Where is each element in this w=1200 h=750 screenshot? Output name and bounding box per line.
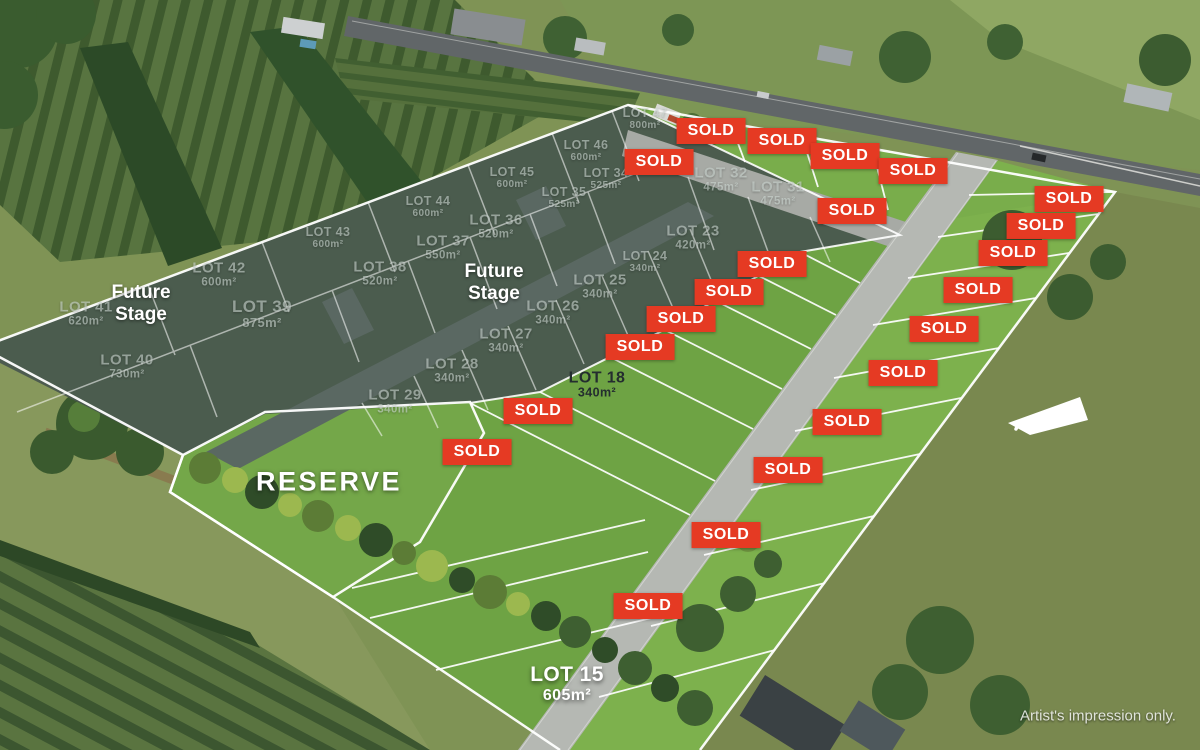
lot-label-28: LOT 28 340m² bbox=[425, 357, 478, 386]
lot-label-46: LOT 46 600m² bbox=[564, 139, 609, 163]
lot-area: 525m² bbox=[584, 180, 629, 191]
lot-label-31: LOT 31 475m² bbox=[751, 180, 804, 209]
lot-name: LOT 25 bbox=[573, 273, 626, 289]
sold-badge: SOLD bbox=[614, 593, 683, 619]
lot-label-42: LOT 42 600m² bbox=[192, 261, 245, 290]
lot-area: 730m² bbox=[100, 369, 153, 381]
lot-name: LOT 40 bbox=[100, 353, 153, 369]
sold-badge: SOLD bbox=[979, 240, 1048, 266]
lot-name: LOT 18 bbox=[569, 370, 626, 387]
lot-area: 600m² bbox=[306, 239, 351, 250]
lot-area: 340m² bbox=[479, 343, 532, 355]
sold-badge: SOLD bbox=[748, 128, 817, 154]
lot-label-44: LOT 44 600m² bbox=[406, 195, 451, 219]
lot-label-35: LOT 35 525m² bbox=[542, 186, 587, 210]
lot-label-47: LOT 47 800m² bbox=[623, 107, 668, 131]
lot-area: 600m² bbox=[406, 208, 451, 219]
lot-label-18: LOT 18 340m² bbox=[569, 370, 626, 401]
sold-badge: SOLD bbox=[677, 118, 746, 144]
lot-area: 340m² bbox=[623, 263, 668, 274]
lot-area: 340m² bbox=[526, 315, 579, 327]
sold-badge: SOLD bbox=[869, 360, 938, 386]
artist-impression-credit: Artist's impression only. bbox=[1020, 708, 1176, 725]
lot-area: 475m² bbox=[694, 182, 747, 194]
lot-name: LOT 42 bbox=[192, 261, 245, 277]
lot-name: LOT 15 bbox=[530, 664, 604, 687]
sold-badge: SOLD bbox=[692, 522, 761, 548]
lot-name: LOT 35 bbox=[542, 186, 587, 200]
lot-name: LOT 39 bbox=[232, 298, 292, 316]
lot-label-27: LOT 27 340m² bbox=[479, 327, 532, 356]
lot-label-15: LOT 15 605m² bbox=[530, 664, 604, 704]
lot-name: LOT 23 bbox=[666, 224, 719, 240]
sold-badge: SOLD bbox=[625, 149, 694, 175]
lot-area: 600m² bbox=[490, 179, 535, 190]
lot-label-34: LOT 34 525m² bbox=[584, 167, 629, 191]
lot-label-25: LOT 25 340m² bbox=[573, 273, 626, 302]
lot-name: LOT 43 bbox=[306, 226, 351, 240]
lot-label-39: LOT 39 875m² bbox=[232, 298, 292, 330]
lot-name: LOT 34 bbox=[584, 167, 629, 181]
lot-label-32: LOT 32 475m² bbox=[694, 166, 747, 195]
lot-area: 520m² bbox=[353, 276, 406, 288]
sold-badge: SOLD bbox=[504, 398, 573, 424]
sold-badge: SOLD bbox=[738, 251, 807, 277]
lot-area: 340m² bbox=[573, 289, 626, 301]
lot-area: 520m² bbox=[469, 229, 522, 241]
lot-label-24: LOT 24 340m² bbox=[623, 250, 668, 274]
lot-label-43: LOT 43 600m² bbox=[306, 226, 351, 250]
lot-name: LOT 32 bbox=[694, 166, 747, 182]
lot-name: LOT 47 bbox=[623, 107, 668, 121]
lot-label-29: LOT 29 340m² bbox=[368, 388, 421, 417]
sold-badge: SOLD bbox=[910, 316, 979, 342]
future-stage-label-central: Future Stage bbox=[444, 261, 544, 305]
reserve-label: RESERVE bbox=[256, 467, 402, 498]
lot-area: 605m² bbox=[530, 687, 604, 704]
lot-area: 875m² bbox=[232, 316, 292, 330]
sold-badge: SOLD bbox=[443, 439, 512, 465]
lot-area: 475m² bbox=[751, 196, 804, 208]
lot-name: LOT 27 bbox=[479, 327, 532, 343]
lot-area: 525m² bbox=[542, 199, 587, 210]
sold-badge: SOLD bbox=[811, 143, 880, 169]
aerial-subdivision-render: LOT 47 800m² LOT 46 600m² LOT 45 600m² L… bbox=[0, 0, 1200, 750]
lot-area: 340m² bbox=[368, 404, 421, 416]
sold-badge: SOLD bbox=[1007, 213, 1076, 239]
lot-name: LOT 44 bbox=[406, 195, 451, 209]
lot-label-40: LOT 40 730m² bbox=[100, 353, 153, 382]
sold-badge: SOLD bbox=[695, 279, 764, 305]
lot-name: LOT 38 bbox=[353, 260, 406, 276]
lot-name: LOT 45 bbox=[490, 166, 535, 180]
lot-label-38: LOT 38 520m² bbox=[353, 260, 406, 289]
sold-badge: SOLD bbox=[647, 306, 716, 332]
lot-name: LOT 31 bbox=[751, 180, 804, 196]
sold-badge: SOLD bbox=[754, 457, 823, 483]
lot-label-23: LOT 23 420m² bbox=[666, 224, 719, 253]
lot-name: LOT 24 bbox=[623, 250, 668, 264]
sold-badge: SOLD bbox=[1035, 186, 1104, 212]
lot-area: 600m² bbox=[192, 277, 245, 289]
lot-area: 340m² bbox=[569, 387, 626, 401]
lot-name: LOT 46 bbox=[564, 139, 609, 153]
lot-label-37: LOT 37 550m² bbox=[416, 234, 469, 263]
future-stage-label-west: Future Stage bbox=[91, 282, 191, 326]
lot-label-36: LOT 36 520m² bbox=[469, 213, 522, 242]
lot-area: 600m² bbox=[564, 152, 609, 163]
lot-name: LOT 29 bbox=[368, 388, 421, 404]
sold-badge: SOLD bbox=[879, 158, 948, 184]
sold-badge: SOLD bbox=[813, 409, 882, 435]
sold-badge: SOLD bbox=[818, 198, 887, 224]
lot-name: LOT 37 bbox=[416, 234, 469, 250]
lot-area: 420m² bbox=[666, 240, 719, 252]
lot-name: LOT 28 bbox=[425, 357, 478, 373]
sold-badge: SOLD bbox=[944, 277, 1013, 303]
lot-area: 800m² bbox=[623, 120, 668, 131]
lot-name: LOT 36 bbox=[469, 213, 522, 229]
sold-badge: SOLD bbox=[606, 334, 675, 360]
lot-area: 340m² bbox=[425, 373, 478, 385]
lot-label-45: LOT 45 600m² bbox=[490, 166, 535, 190]
